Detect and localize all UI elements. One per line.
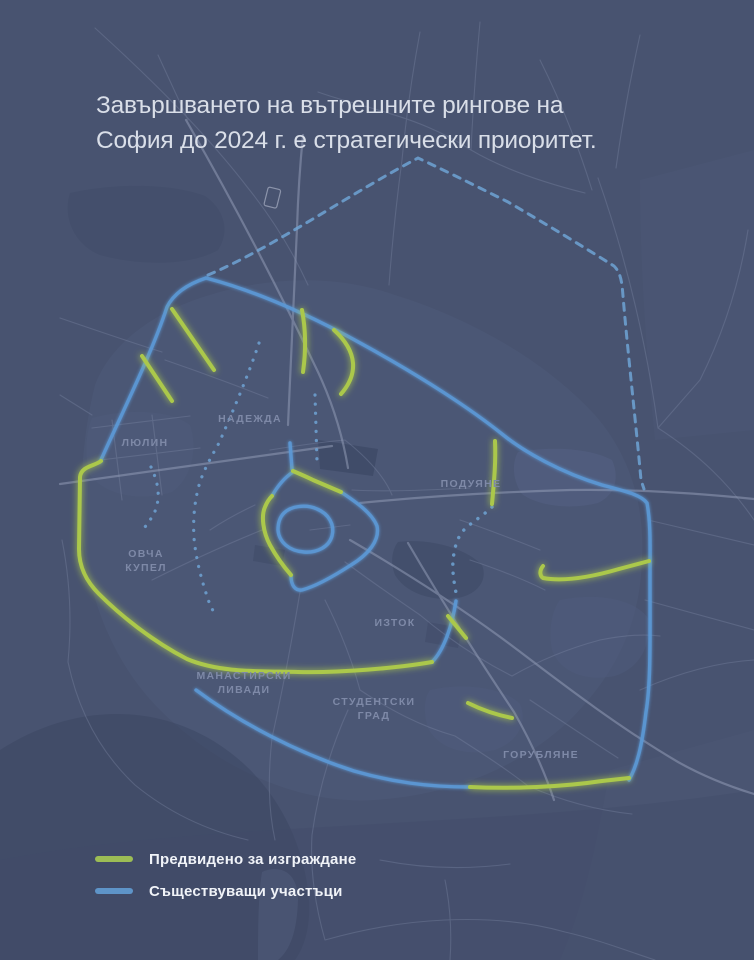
district-label-nadezhda: НАДЕЖДА — [218, 412, 282, 426]
district-label-poduyane: ПОДУЯНЕ — [441, 477, 502, 491]
center-spur-blue — [290, 443, 292, 469]
page-title-line1: Завършването на вътрешните рингове на — [96, 88, 696, 123]
district-label-iztok: ИЗТОК — [375, 616, 416, 630]
legend-item-existing: Съществуващи участъци — [95, 880, 356, 902]
legend-label-existing: Съществуващи участъци — [149, 883, 343, 900]
district-label-ovcha-kupel: ОВЧА КУПЕЛ — [125, 547, 167, 575]
district-label-studentski-grad: СТУДЕНТСКИ ГРАД — [333, 695, 416, 723]
page-title-line2: София до 2024 г. е стратегически приорит… — [96, 123, 696, 158]
district-label-gorublyane: ГОРУБЛЯНЕ — [503, 748, 579, 762]
planned-line-swatch — [95, 855, 133, 863]
legend-item-planned: Предвидено за изграждане — [95, 848, 356, 870]
page-title: Завършването на вътрешните рингове на Со… — [96, 88, 696, 158]
southern-arc-green — [470, 778, 629, 788]
infographic-page: { "title": { "line1": "Завършването на в… — [0, 0, 754, 960]
depot-rect-glyph — [264, 187, 281, 209]
district-label-lyulin: ЛЮЛИН — [122, 436, 169, 450]
legend: Предвидено за изграждане Съществуващи уч… — [95, 848, 356, 912]
legend-label-planned: Предвидено за изграждане — [149, 851, 356, 868]
district-label-manastirski-livadi: МАНАСТИРСКИ ЛИВАДИ — [196, 669, 291, 697]
existing-line-swatch — [95, 887, 133, 895]
